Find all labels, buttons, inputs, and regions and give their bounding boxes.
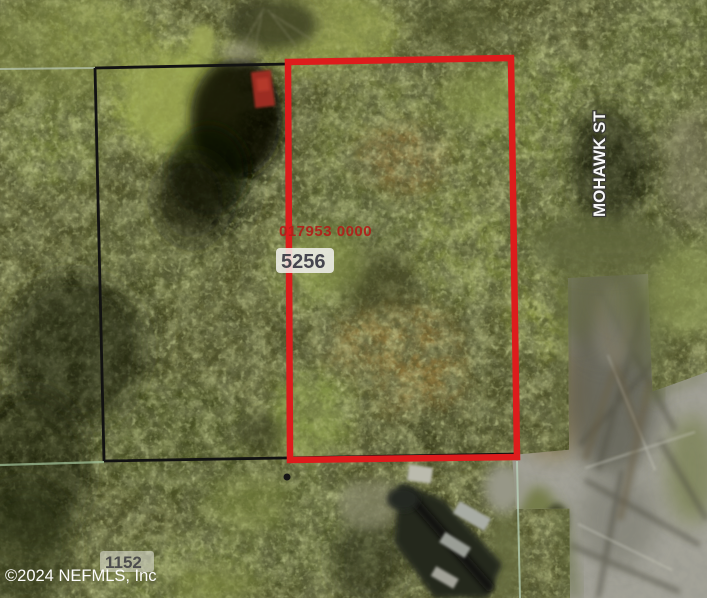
svg-text:5256: 5256 <box>281 251 326 273</box>
svg-text:©2024 NEFMLS, Inc: ©2024 NEFMLS, Inc <box>5 567 157 585</box>
svg-text:MOHAWK ST: MOHAWK ST <box>590 111 609 217</box>
svg-text:017953 0000: 017953 0000 <box>279 223 372 240</box>
